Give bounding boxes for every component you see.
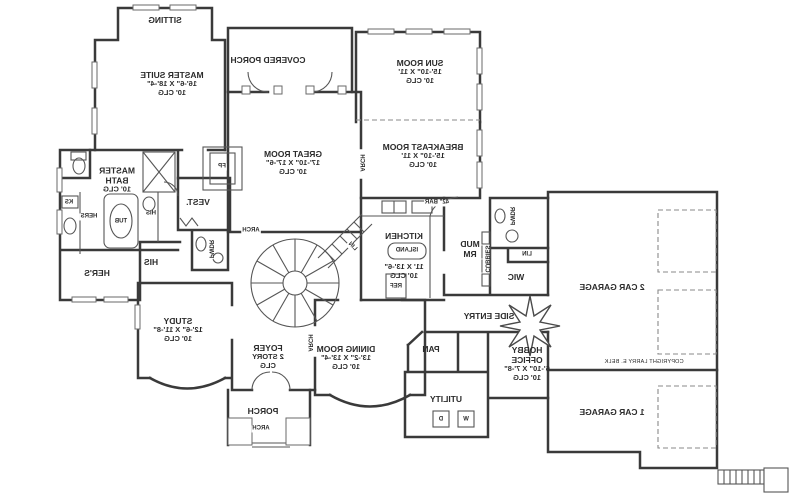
room-label-two-car-garage: 2 CAR GARAGE bbox=[579, 282, 644, 292]
sink-icon bbox=[143, 197, 155, 211]
room-ceiling: 10' CLG bbox=[317, 363, 376, 372]
room-ceiling: CLG bbox=[252, 362, 284, 371]
garage-door-bay bbox=[658, 210, 716, 272]
room-label-covered-porch: COVERED PORCH bbox=[230, 55, 305, 65]
bar-label: 42" BAR bbox=[424, 199, 450, 206]
room-label-pantry: PAN bbox=[422, 344, 439, 354]
room-label-great-room: GREAT ROOM 17'-10" X 17'-6" 10' CLG bbox=[264, 149, 322, 177]
room-label-hers-closet: HER'S bbox=[84, 268, 110, 278]
room-name: PORCH bbox=[248, 406, 279, 416]
his-vanity-label: HIS bbox=[145, 210, 157, 217]
sink-icon bbox=[64, 218, 76, 234]
room-name: HIS bbox=[144, 257, 158, 267]
porch-column bbox=[228, 418, 252, 445]
garage-door-bay bbox=[658, 290, 716, 354]
room-label-kitchen: KITCHEN bbox=[385, 231, 423, 241]
fireplace-label: FP bbox=[217, 163, 227, 170]
room-name: MASTER BATH bbox=[96, 166, 138, 186]
bifold-door-icon bbox=[180, 218, 198, 226]
room-name: HER'S bbox=[84, 268, 110, 278]
room-label-dining-room: DINING ROOM 13'-2" X 13'-4" 10' CLG bbox=[317, 344, 376, 372]
room-label-breakfast-room: BREAKFAST ROOM 15'-10" X 11' 10' CLG bbox=[383, 142, 464, 170]
door-arc bbox=[248, 72, 268, 92]
knee-space-label: KS bbox=[64, 199, 74, 206]
sink-icon bbox=[506, 230, 518, 242]
powder-room-label: PWDR bbox=[206, 239, 213, 259]
arch-label: ARCH bbox=[357, 153, 364, 172]
garage-door-bay bbox=[658, 386, 716, 448]
island-label: ISLAND bbox=[395, 247, 419, 254]
room-label-sitting: SITTING bbox=[148, 15, 182, 25]
room-label-foyer: FOYER 2 STORY CLG bbox=[252, 343, 284, 371]
room-label-hobby-office: HOBBY OFFICE 6'-10" X 7'-8" 10' CLG bbox=[504, 345, 550, 383]
room-name: SITTING bbox=[148, 15, 182, 25]
room-ceiling: 10' CLG bbox=[397, 77, 444, 86]
room-name: SIDE ENTRY bbox=[464, 311, 515, 321]
door-arc bbox=[272, 372, 290, 390]
room-label-his-closet: HIS bbox=[144, 257, 158, 267]
room-ceiling: 10' CLG bbox=[504, 374, 550, 383]
room-name: COVERED PORCH bbox=[230, 55, 305, 65]
door-arc bbox=[252, 372, 270, 390]
powder-room-label: PWDR bbox=[507, 206, 514, 226]
dryer-label: D bbox=[438, 416, 444, 423]
tub-label: TUB bbox=[114, 218, 128, 225]
cubbies-label: CUBBIES bbox=[482, 244, 489, 273]
room-ceiling: 10' CLG bbox=[140, 89, 203, 98]
room-name: 2 CAR GARAGE bbox=[579, 282, 644, 292]
room-name: UTILITY bbox=[430, 394, 462, 404]
room-label-one-car-garage: 1 CAR GARAGE bbox=[579, 407, 644, 417]
room-label-utility: UTILITY bbox=[430, 394, 462, 404]
room-label-master-bath: MASTER BATH 10' CLG bbox=[96, 166, 138, 195]
arch-label: ARCH bbox=[305, 333, 312, 352]
room-label-vestibule: VEST. bbox=[186, 197, 210, 207]
room-label-master-suite: MASTER SUITE 16'-6" X 18'-4" 10' CLG bbox=[140, 70, 203, 98]
floor-plan-page: SITTING MASTER SUITE 16'-6" X 18'-4" 10'… bbox=[0, 0, 800, 494]
room-ceiling: 10' CLG bbox=[96, 186, 138, 195]
door-arc bbox=[164, 182, 178, 196]
room-label-wic: WIC bbox=[508, 272, 525, 282]
room-label-porch: PORCH bbox=[248, 406, 279, 416]
toilet-icon bbox=[495, 209, 505, 223]
room-label-side-entry: SIDE ENTRY bbox=[464, 311, 515, 321]
room-ceiling: 10' CLG bbox=[264, 168, 322, 177]
linen-label: LIN bbox=[521, 251, 533, 258]
toilet-icon bbox=[196, 237, 206, 251]
sink-icon bbox=[213, 253, 223, 263]
room-name: 1 CAR GARAGE bbox=[579, 407, 644, 417]
room-label-sun-room: SUN ROOM 15'-10" X 11' 10' CLG bbox=[397, 58, 444, 86]
hers-vanity-label: HERS bbox=[80, 213, 99, 220]
room-name: MUD RM bbox=[458, 239, 482, 259]
room-name: VEST. bbox=[186, 197, 210, 207]
room-label-study: STUDY 12'-6" X 11'-8" 10' CLG bbox=[153, 316, 202, 344]
room-name: WIC bbox=[508, 272, 525, 282]
room-name: HOBBY OFFICE bbox=[507, 345, 547, 365]
room-ceiling: 10' CLG bbox=[153, 335, 202, 344]
room-label-kitchen-dims: 11' X 13'-6" 10' CLG bbox=[384, 263, 423, 281]
stair-flight-icon bbox=[318, 214, 372, 268]
washer-label: W bbox=[462, 416, 470, 423]
refrigerator-label: REF bbox=[389, 283, 403, 290]
copyright-label: COPYRIGHT LARRY E. BELK bbox=[603, 359, 684, 365]
room-ceiling: 10' CLG bbox=[384, 272, 423, 281]
door-arc bbox=[312, 72, 332, 92]
room-ceiling: 10' CLG bbox=[383, 161, 464, 170]
porch-column bbox=[286, 418, 310, 445]
arch-label: ARCH bbox=[241, 227, 260, 234]
room-label-mud-room: MUD RM bbox=[458, 239, 482, 259]
arch-label: ARCH bbox=[251, 425, 270, 432]
room-name: PAN bbox=[422, 344, 439, 354]
walkway-steps bbox=[718, 468, 788, 492]
room-name: KITCHEN bbox=[385, 231, 423, 241]
